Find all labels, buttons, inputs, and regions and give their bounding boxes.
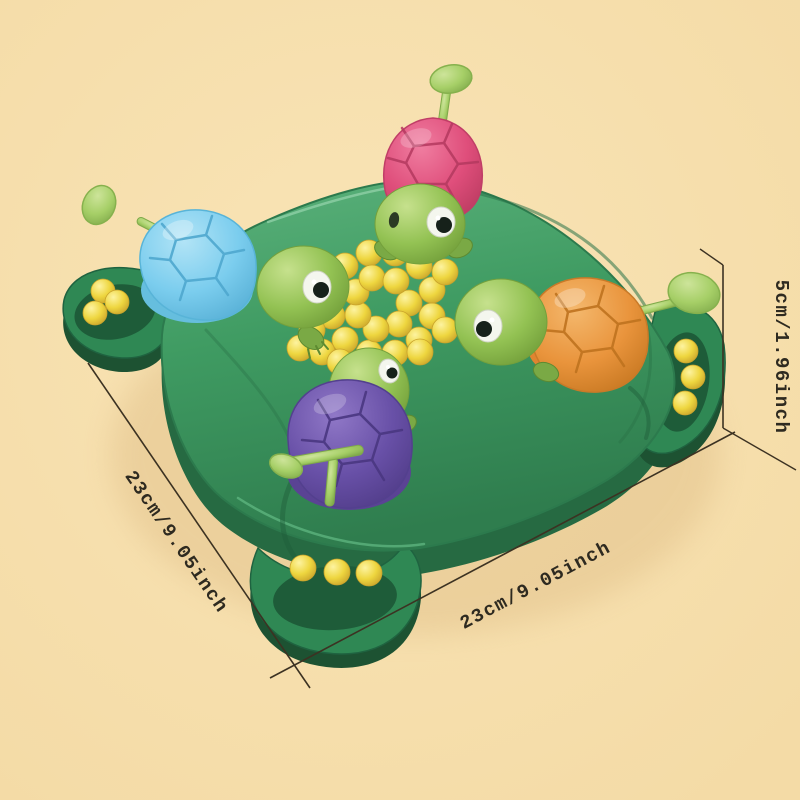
bead — [407, 339, 433, 365]
eye-glint — [490, 318, 495, 323]
turtle-pink-eye — [427, 207, 455, 237]
eye-pupil — [313, 282, 329, 298]
eye-glint — [312, 280, 317, 285]
bead — [332, 327, 358, 353]
bead — [290, 555, 316, 581]
bead — [356, 560, 382, 586]
bead — [345, 302, 371, 328]
bead — [324, 559, 350, 585]
eye-pupil — [387, 368, 398, 379]
bead — [83, 301, 107, 325]
bead — [674, 339, 698, 363]
beads-bottom-tray — [290, 555, 382, 586]
turtle-blue-eye — [303, 271, 331, 303]
dimension-label-height: 5cm/1.96inch — [770, 280, 792, 435]
bead — [432, 317, 458, 343]
bead — [105, 290, 129, 314]
product-photo: 23cm/9.05inch 23cm/9.05inch 5cm/1.96inch — [0, 0, 800, 800]
eye-glint — [386, 365, 390, 369]
eye-pupil — [476, 321, 492, 337]
bead — [359, 265, 385, 291]
eye-glint — [436, 216, 441, 221]
bead — [386, 311, 412, 337]
bead — [673, 391, 697, 415]
bead — [432, 259, 458, 285]
bead — [383, 268, 409, 294]
toy-illustration: 23cm/9.05inch 23cm/9.05inch 5cm/1.96inch — [0, 0, 800, 800]
turtle-purple-shell — [288, 380, 412, 508]
bead — [681, 365, 705, 389]
turtle-orange-eye — [474, 310, 502, 342]
